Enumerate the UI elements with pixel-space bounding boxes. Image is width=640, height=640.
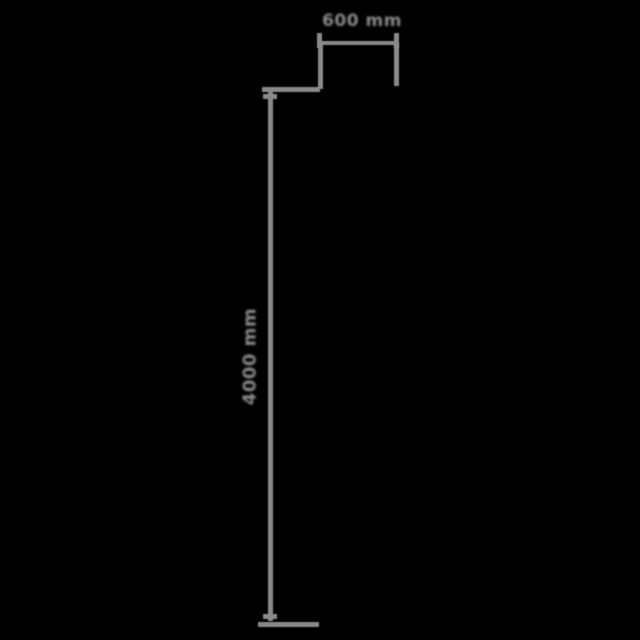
- height-bottom-extension-line: [258, 622, 319, 627]
- height-dimension-bottom-tick: [263, 614, 277, 619]
- height-dimension-top-tick: [263, 94, 277, 99]
- width-dimension-label: 600 mm: [322, 11, 402, 31]
- height-dimension-label: 4000 mm: [240, 297, 261, 417]
- dimension-diagram: 600 mm 4000 mm: [0, 0, 640, 640]
- width-dimension-line: [318, 41, 398, 45]
- width-right-witness-line: [394, 43, 399, 86]
- height-dimension-line: [268, 91, 273, 621]
- width-left-witness-line: [318, 43, 323, 89]
